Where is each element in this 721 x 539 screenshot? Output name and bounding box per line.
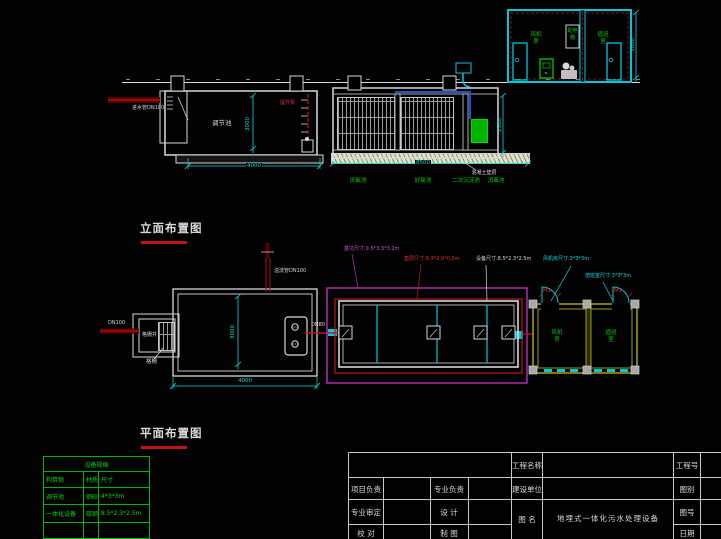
- spec-cell: 4*3*3m: [99, 488, 150, 505]
- spec-col-structure: 构筑物: [44, 472, 84, 488]
- spec-col-size: 尺寸: [99, 472, 150, 488]
- plan-equipment-leader-label: 设备尺寸:8.5*2.3*2.5m: [476, 257, 531, 263]
- spec-cell: 8.5*2.3*2.5m: [99, 505, 150, 523]
- title-block-discipline-lead-label: 专业负责: [434, 484, 464, 495]
- plan-pit-leader-label: 基坑尺寸:9.5*3.3*3.2m: [344, 247, 399, 253]
- elevation-cabinet-line1: 配电: [566, 28, 579, 35]
- title-block-discipline-review-label: 专业审定: [351, 507, 381, 518]
- title-block-drawing-name-label: 图 名: [518, 514, 535, 525]
- elevation-inlet-pipe-label: 进水管DN100: [132, 106, 164, 112]
- plan-grille-well-label: 格栅井: [142, 333, 157, 339]
- plan-transfer-pipe-label: DN80: [311, 323, 325, 329]
- elevation-process-label-anaerobic: 厌氧池: [350, 178, 367, 184]
- elevation-equip-width-dim: 8500: [415, 160, 431, 166]
- plan-room1-line2: 房: [548, 337, 566, 344]
- spec-cell: 钢砼: [84, 488, 99, 505]
- elevation-pump-label: 提升泵: [280, 101, 295, 107]
- elevation-process-label-disinfection: 消毒池: [488, 178, 505, 184]
- plan-duty-room-leader-label: 值班室尺寸:3*3*3m: [585, 274, 631, 280]
- elevation-view-title: 立面布置图: [140, 222, 203, 235]
- elevation-cabinet-line2: 箱: [566, 35, 579, 42]
- elevation-room1-label: 风机 房: [527, 32, 545, 45]
- spec-cell: [84, 523, 99, 539]
- plan-room2-line2: 室: [602, 337, 620, 344]
- spec-cell: 碳钢: [84, 505, 99, 523]
- elevation-tank-width-dim: 4000: [246, 163, 262, 169]
- elevation-equipment: [330, 63, 531, 170]
- plan-blower-room-leader-label: 风机房尺寸:3*3*3m: [543, 257, 589, 263]
- title-block-check-label: 校 对: [357, 528, 374, 539]
- title-block-project-name-label: 工程名称: [512, 460, 542, 471]
- elevation-room2-label: 值班 室: [594, 32, 612, 45]
- elevation-title-underline: [141, 241, 187, 244]
- elevation-process-label-aerobic: 好氧池: [415, 178, 432, 184]
- plan-room2-label: 值班 室: [602, 330, 620, 343]
- plan-view-title: 平面布置图: [140, 427, 203, 440]
- title-block-draft-label: 制 图: [440, 528, 457, 539]
- spec-col-material: 材质: [84, 472, 99, 488]
- plan-door-tag-1: M1: [543, 288, 551, 294]
- title-block-build-unit-label: 建设单位: [512, 484, 542, 495]
- plan-overflow-pipe-label: 溢流管DN100: [274, 269, 306, 275]
- plan-tank-width-dim: 4000: [237, 378, 253, 384]
- spec-cell: [99, 523, 150, 539]
- title-block-design-label: 设 计: [440, 507, 457, 518]
- spec-table-header: 设备规格: [44, 457, 150, 472]
- plan-cushion-leader-label: 垫层尺寸:9.3*2.9*0.2m: [404, 257, 459, 263]
- plan-regulating-tank: [100, 243, 339, 389]
- title-block-date-label: 日期: [680, 528, 695, 539]
- plan-inlet-dn-label: DN100: [108, 321, 125, 327]
- elevation-process-label-clarifier: 二次沉淀池: [452, 178, 480, 184]
- title-block-category-label: 图别: [680, 484, 695, 495]
- plan-equipment: [327, 254, 613, 383]
- elevation-building: [508, 10, 639, 82]
- elevation-cushion-note: 混凝土垫层: [471, 171, 496, 177]
- drawing-title: 地埋式一体化污水处理设备: [557, 513, 659, 524]
- plan-tank-depth-dim: 3000: [230, 325, 236, 339]
- plan-rooms: [529, 287, 639, 374]
- elevation-room1-line2: 房: [527, 39, 545, 46]
- plan-room1-label: 风机 房: [548, 330, 566, 343]
- spec-cell: 一体化设备: [44, 505, 84, 523]
- elevation-tank-depth-dim: 3000: [245, 117, 251, 131]
- elevation-building-height-dim: 3000: [630, 38, 636, 52]
- spec-cell: 调节池: [44, 488, 84, 505]
- equipment-spec-table: 设备规格 构筑物 材质 尺寸 调节池 钢砼 4*3*3m 一体化设备 碳钢 8.…: [43, 456, 150, 539]
- elevation-cabinet-label: 配电 箱: [566, 28, 579, 41]
- elevation-tank-label: 调节池: [212, 120, 232, 127]
- title-block-project-no-label: 工程号: [676, 460, 699, 471]
- cad-drawing-canvas: 立面布置图 平面布置图 调节池 进水管DN100 提升泵 3000 4000 8…: [0, 0, 721, 539]
- elevation-room2-line2: 室: [594, 39, 612, 46]
- title-block-project-lead-label: 项目负责: [351, 484, 381, 495]
- plan-grille-label: 格栅: [146, 359, 157, 365]
- elevation-equip-depth-dim: 2500: [497, 118, 503, 132]
- plan-door-tag-2: M1: [614, 288, 622, 294]
- plan-title-underline: [141, 446, 187, 449]
- spec-cell: [44, 523, 84, 539]
- title-block-drawing-no-label: 图号: [680, 507, 695, 518]
